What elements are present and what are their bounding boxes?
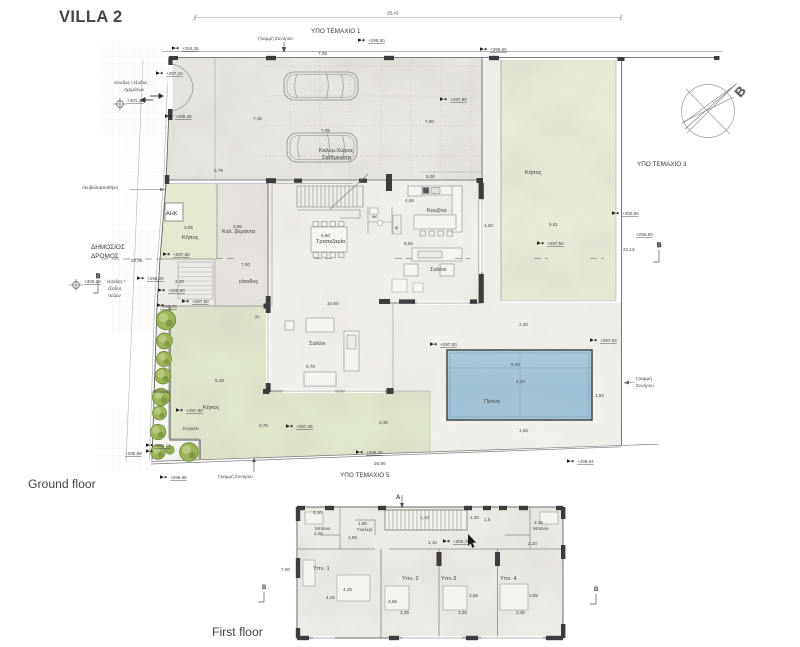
svg-text:Κήπος: Κήπος (182, 234, 199, 241)
svg-text:Στάθμευσης: Στάθμευσης (322, 154, 352, 161)
svg-text:Συνόρου: Συνόρου (636, 382, 654, 388)
svg-text:+300,70: +300,70 (453, 539, 470, 544)
svg-text:1,30: 1,30 (470, 515, 479, 520)
svg-text:+296,60: +296,60 (636, 232, 653, 237)
svg-text:6,81: 6,81 (549, 222, 558, 227)
svg-text:7,05: 7,05 (321, 128, 330, 133)
svg-text:B: B (96, 274, 101, 280)
svg-text:Γραμμή: Γραμμή (636, 375, 652, 381)
svg-text:ΥΠΟ ΤΕΜΑΧΙΟ 5: ΥΠΟ ΤΕΜΑΧΙΟ 5 (340, 472, 390, 479)
svg-text:σκυβαλοαποθήκη: σκυβαλοαποθήκη (82, 184, 118, 190)
svg-text:Υπν. 2: Υπν. 2 (402, 576, 419, 582)
svg-text:+297,63: +297,63 (600, 338, 617, 343)
svg-text:+297,90: +297,90 (450, 97, 467, 102)
svg-text:3,35: 3,35 (379, 420, 388, 425)
svg-text:+296,60: +296,60 (168, 288, 185, 293)
svg-text:πεζών: πεζών (108, 292, 122, 299)
svg-text:+297,10: +297,10 (166, 71, 183, 76)
svg-text:+297,50: +297,50 (547, 241, 564, 246)
svg-text:1,5: 1,5 (484, 517, 491, 522)
svg-text:2,20: 2,20 (175, 279, 184, 284)
svg-text:+297,45: +297,45 (296, 424, 313, 429)
svg-text:ΔΗΜΟΣΙΟΣ: ΔΗΜΟΣΙΟΣ (91, 244, 125, 251)
svg-text:Μπάνιο: Μπάνιο (533, 525, 549, 531)
svg-text:7,00: 7,00 (281, 567, 290, 572)
svg-text:Καλ. βεράντα: Καλ. βεράντα (222, 228, 256, 235)
svg-text:23,55: 23,55 (131, 258, 143, 263)
svg-text:+297,00: +297,00 (440, 342, 457, 347)
svg-text:22,13: 22,13 (623, 247, 635, 252)
svg-text:3,35: 3,35 (458, 610, 467, 615)
svg-text:+296,04: +296,04 (577, 459, 594, 464)
svg-text:7,00: 7,00 (241, 262, 250, 267)
svg-text:1,90: 1,90 (358, 521, 367, 526)
svg-text:Σαλόνι: Σαλόνι (309, 340, 326, 347)
svg-text:1,20: 1,20 (484, 223, 493, 228)
svg-text:2,95: 2,95 (233, 224, 242, 229)
svg-text:2,25: 2,25 (314, 531, 323, 536)
svg-text:7,00: 7,00 (425, 119, 434, 124)
svg-text:ΥΠΟ ΤΕΜΑΧΙΟ 1: ΥΠΟ ΤΕΜΑΧΙΟ 1 (311, 28, 361, 35)
svg-text:ΑΗΚ: ΑΗΚ (166, 211, 178, 217)
svg-text:Κουζίνα: Κουζίνα (427, 208, 447, 214)
svg-text:A: A (396, 495, 401, 501)
svg-text:VILLA 2: VILLA 2 (59, 8, 123, 26)
svg-text:+297,60: +297,60 (173, 252, 190, 257)
svg-text:+300,85: +300,85 (622, 211, 639, 216)
svg-text:3,65: 3,65 (469, 593, 478, 598)
svg-text:+288,26: +288,26 (175, 114, 192, 119)
svg-text:6,79: 6,79 (306, 364, 315, 369)
svg-text:+295,58: +295,58 (125, 451, 142, 456)
svg-text:2,10: 2,10 (313, 510, 322, 515)
svg-text:ψ: ψ (395, 225, 398, 230)
svg-text:είσοδος /: είσοδος / (107, 279, 126, 284)
svg-text:ΔΡΟΜΟΣ: ΔΡΟΜΟΣ (91, 253, 119, 260)
svg-text:Τραπεζαρία: Τραπεζαρία (316, 239, 346, 245)
svg-text:wc: wc (372, 214, 378, 219)
svg-text:3,79: 3,79 (259, 423, 268, 428)
svg-text:Σαλόνι: Σαλόνι (430, 266, 447, 273)
svg-text:3,35: 3,35 (516, 610, 525, 615)
svg-text:2,40: 2,40 (519, 322, 528, 327)
svg-text:Υπν. 1: Υπν. 1 (313, 566, 330, 572)
svg-text:25,43: 25,43 (387, 11, 399, 16)
svg-text:1,85: 1,85 (348, 535, 357, 540)
svg-text:Κήπος: Κήπος (203, 404, 220, 411)
svg-text:Υπν.3: Υπν.3 (441, 576, 456, 582)
svg-text:7,05: 7,05 (318, 51, 327, 56)
svg-text:7,15: 7,15 (253, 116, 262, 121)
svg-text:Ground floor: Ground floor (28, 477, 96, 491)
svg-text:8,55: 8,55 (404, 241, 413, 246)
svg-text:1,10: 1,10 (420, 515, 429, 520)
svg-text:5,28: 5,28 (215, 378, 224, 383)
svg-text:+284,26: +284,26 (182, 46, 199, 51)
svg-text:+297,60: +297,60 (192, 299, 209, 304)
svg-text:είσοδος / έξοδος: είσοδος / έξοδος (114, 79, 148, 86)
svg-text:+299,50: +299,50 (490, 47, 507, 52)
svg-text:γν: γν (255, 314, 260, 319)
svg-text:+297,70: +297,70 (160, 304, 177, 309)
svg-text:3,06: 3,06 (184, 225, 193, 230)
svg-text:έξοδος: έξοδος (108, 285, 123, 292)
svg-text:First floor: First floor (212, 625, 263, 639)
svg-text:+296,96: +296,96 (170, 475, 187, 480)
svg-text:οχημάτων: οχημάτων (124, 86, 145, 92)
svg-text:Υπν. 4: Υπν. 4 (500, 576, 517, 582)
svg-text:10,60: 10,60 (327, 301, 339, 306)
svg-text:26,86: 26,86 (374, 461, 386, 466)
svg-text:+301,30: +301,30 (127, 98, 144, 103)
svg-text:2,15: 2,15 (534, 520, 543, 525)
svg-text:Κήπος: Κήπος (525, 169, 542, 176)
svg-text:6,60: 6,60 (321, 233, 330, 238)
svg-text:+296,20: +296,20 (147, 276, 164, 281)
svg-text:Γραμμή Συνόρου: Γραμμή Συνόρου (258, 35, 293, 41)
svg-text:1,65: 1,65 (519, 428, 528, 433)
svg-text:Ανθώνας: Ανθώνας (152, 388, 171, 394)
svg-text:4,65: 4,65 (405, 198, 414, 203)
svg-text:Γκαλερί: Γκαλερί (357, 527, 372, 532)
svg-text:+296,11: +296,11 (154, 443, 171, 448)
svg-text:ΥΠΟ ΤΕΜΑΧΙΟ 3: ΥΠΟ ΤΕΜΑΧΙΟ 3 (637, 161, 687, 168)
svg-text:3,65: 3,65 (388, 599, 397, 604)
svg-text:είσοδος: είσοδος (239, 279, 259, 285)
svg-text:Γραμμή Συνόρου: Γραμμή Συνόρου (218, 473, 253, 479)
svg-text:1,10: 1,10 (428, 540, 437, 545)
svg-text:+296,26: +296,26 (366, 450, 383, 455)
svg-text:Καγκέλι: Καγκέλι (183, 425, 199, 431)
svg-text:1,50: 1,50 (595, 393, 604, 398)
svg-text:B: B (594, 587, 599, 593)
svg-text:+297,80: +297,80 (186, 408, 203, 413)
svg-text:2,20: 2,20 (528, 541, 537, 546)
svg-text:5,00: 5,00 (426, 174, 435, 179)
svg-text:3,65: 3,65 (529, 593, 538, 598)
svg-text:Καλυμ.Χώρος: Καλυμ.Χώρος (319, 148, 354, 154)
svg-text:3,35: 3,35 (400, 610, 409, 615)
svg-text:4,25: 4,25 (343, 587, 352, 592)
svg-text:4,25: 4,25 (326, 595, 335, 600)
svg-text:5,79: 5,79 (214, 168, 223, 173)
svg-text:B: B (262, 585, 267, 591)
svg-text:+299,50: +299,50 (368, 38, 385, 43)
svg-text:B: B (657, 243, 662, 249)
